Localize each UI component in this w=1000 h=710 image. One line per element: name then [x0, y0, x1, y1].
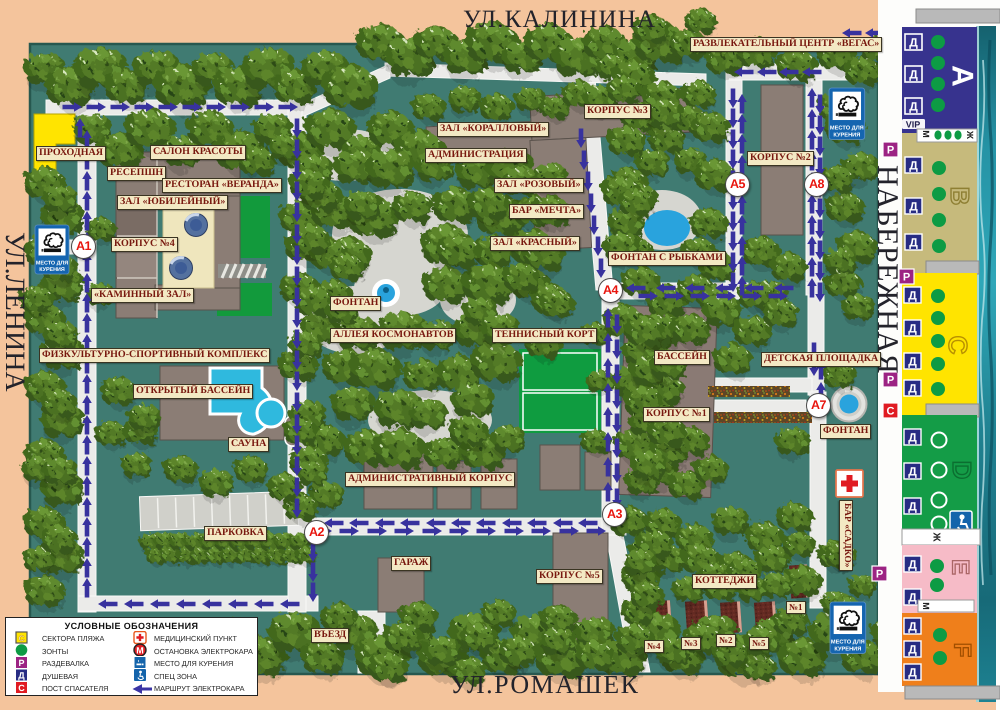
svg-text:Р: Р — [876, 569, 883, 581]
svg-text:Р: Р — [18, 658, 24, 668]
svg-text:Д: Д — [908, 643, 917, 657]
svg-text:Д: Д — [909, 159, 918, 173]
svg-text:М: М — [921, 130, 931, 138]
svg-text:F: F — [949, 643, 976, 658]
svg-text:Д: Д — [908, 465, 917, 479]
svg-text:Д: Д — [909, 100, 918, 114]
svg-text:Д: Д — [909, 68, 918, 82]
svg-text:КУРЕНИЯ: КУРЕНИЯ — [834, 646, 861, 652]
svg-text:Д: Д — [908, 500, 917, 514]
svg-text:Ж: Ж — [965, 130, 975, 140]
svg-text:М: М — [921, 602, 931, 610]
svg-text:Д: Д — [908, 289, 917, 303]
svg-text:Д: Д — [908, 591, 917, 605]
svg-text:В: В — [945, 187, 975, 206]
svg-text:Д: Д — [908, 666, 917, 680]
svg-text:A: A — [946, 65, 979, 87]
svg-text:Д: Д — [908, 558, 917, 572]
svg-text:Р: Р — [887, 375, 894, 387]
svg-text:VIP: VIP — [906, 120, 921, 130]
svg-text:Д: Д — [908, 431, 917, 445]
svg-text:КУРЕНИЯ: КУРЕНИЯ — [833, 132, 860, 138]
svg-text:Р: Р — [887, 145, 894, 157]
svg-text:МЕСТО ДЛЯ: МЕСТО ДЛЯ — [830, 125, 864, 131]
svg-text:Д: Д — [908, 382, 917, 396]
svg-text:Д: Д — [908, 322, 917, 336]
svg-text:E: E — [947, 559, 974, 575]
svg-text:КУРЕНИЯ: КУРЕНИЯ — [39, 267, 65, 273]
svg-text:МЕСТО ДЛЯ: МЕСТО ДЛЯ — [36, 261, 68, 267]
svg-text:D: D — [947, 461, 977, 480]
svg-text:Д: Д — [908, 355, 917, 369]
svg-text:С: С — [19, 634, 25, 643]
svg-text:Д: Д — [909, 36, 918, 50]
svg-text:С: С — [18, 683, 25, 693]
svg-text:М: М — [136, 645, 144, 655]
svg-text:С: С — [887, 406, 895, 418]
svg-text:МЕСТО ДЛЯ: МЕСТО ДЛЯ — [831, 639, 865, 645]
svg-text:С: С — [943, 336, 973, 355]
svg-text:Д: Д — [908, 620, 917, 634]
svg-text:Д: Д — [909, 236, 918, 250]
svg-text:Ж: Ж — [931, 531, 942, 542]
svg-text:Д: Д — [18, 671, 25, 681]
svg-text:Д: Д — [909, 200, 918, 214]
